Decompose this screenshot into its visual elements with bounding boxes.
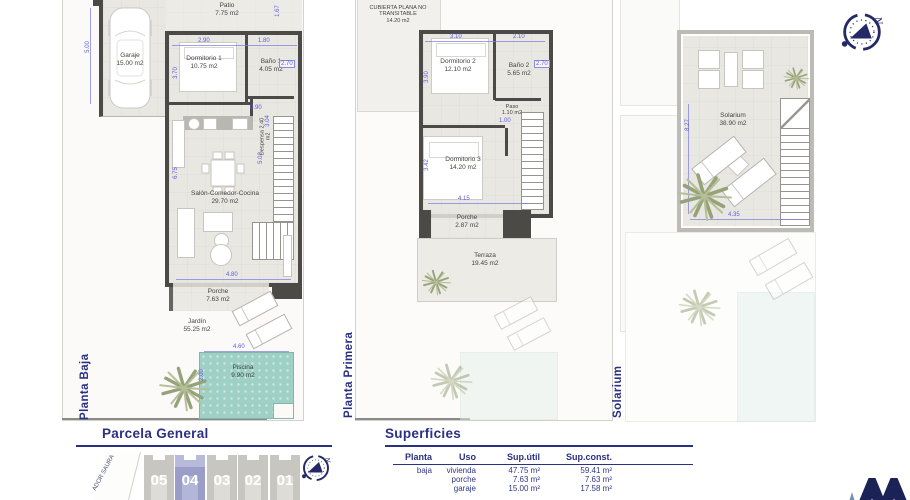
col-values-const: 59.41 m²7.63 m²17.58 m² — [532, 467, 612, 493]
room-label-salon: Salón-Comedor-Cocina29.70 m2 — [180, 190, 270, 205]
plan-title-solarium: Solarium — [612, 356, 624, 418]
kitchen-appliance — [232, 118, 248, 130]
room-label-solarium: Solarium38.90 m2 — [703, 112, 763, 127]
dim-label: 1.00 — [499, 118, 511, 124]
room-label-dormitorio1: Dormitorio 110.75 m2 — [172, 55, 236, 70]
col-header-uso: Uso — [416, 452, 476, 462]
room-label-piscina: Piscina9.90 m2 — [213, 364, 273, 379]
dim-label: 0.90 — [250, 105, 262, 111]
dim-label: 2.10 — [513, 34, 525, 40]
plot-05: 05 — [144, 455, 174, 500]
col-header-util: Sup.útil — [470, 452, 540, 462]
palm-tree-icon-ghost — [676, 284, 722, 330]
superficies-heading: Superficies — [385, 426, 461, 441]
svg-text:N: N — [322, 456, 332, 465]
dim-label: 5.02 — [258, 152, 264, 164]
dim-label: 5.00 — [85, 41, 91, 53]
north-arrow-icon-small: N — [298, 450, 334, 486]
pouf-large — [210, 244, 232, 266]
room-label-dormitorio3: Dormitorio 314.20 m2 — [430, 156, 496, 171]
plot-04-highlighted: 04 — [175, 455, 205, 500]
room-label-porche2: Porche2.87 m2 — [437, 214, 497, 229]
dim-label: 3.42 — [424, 159, 430, 171]
dim-label: 3.04 — [265, 115, 271, 127]
stair-landing — [780, 98, 810, 130]
floor-plan-sheet: Garaje15.00 m2 Patio7.75 m2 Dormitorio 1… — [0, 0, 910, 500]
dim-label: 8.27 — [685, 119, 691, 131]
room-label-porche: Porche7.63 m2 — [188, 288, 248, 303]
dim-label: 2.90 — [198, 38, 210, 44]
stairs-planta-primera — [521, 112, 544, 210]
dim-label: 1.80 — [258, 38, 270, 44]
dim-label: 3.70 — [173, 67, 179, 79]
plan-title-planta-primera: Planta Primera — [343, 322, 355, 418]
dim-label: 4.15 — [458, 196, 470, 202]
pool-ghost — [737, 292, 815, 422]
room-label-dormitorio2: Dormitorio 212.10 m2 — [426, 58, 490, 73]
dining-table-icon — [201, 150, 245, 194]
dim-label: 2.70 — [279, 60, 295, 68]
dim-label: 1.67 — [275, 5, 281, 17]
company-logo — [842, 478, 910, 500]
kitchen-cabinet — [172, 120, 185, 168]
parcela-heading: Parcela General — [102, 426, 209, 441]
tv-unit — [283, 235, 292, 277]
palm-tree-icon-ghost — [428, 358, 474, 404]
deck-chair — [742, 70, 764, 89]
deck-chair — [698, 70, 720, 89]
room-label-cubierta: CUBIERTA PLANA NO TRANSITABLE 14.20 m2 — [357, 5, 439, 24]
stairs-solarium — [780, 128, 810, 226]
room-label-patio: Patio7.75 m2 — [197, 2, 257, 17]
stairs-planta-baja — [273, 116, 294, 222]
dim-label: 2.70 — [534, 60, 550, 68]
dim-label: 2.00 — [199, 369, 205, 381]
plot-02: 02 — [238, 455, 268, 500]
col-values-util: 47.75 m²7.63 m²15.00 m² — [470, 467, 540, 493]
armchair — [203, 212, 233, 232]
col-values-uso: viviendaporchegaraje — [416, 467, 476, 493]
north-arrow-icon: N — [836, 6, 888, 58]
palm-tree-icon — [782, 64, 810, 92]
palm-tree-icon — [674, 166, 734, 226]
palm-tree-icon — [420, 266, 452, 298]
sofa — [177, 208, 195, 258]
room-label-terraza: Terraza19.45 m2 — [450, 252, 520, 267]
dim-label: 4.60 — [233, 344, 245, 350]
kitchen-hob — [203, 118, 217, 130]
pool-ghost — [460, 352, 558, 420]
kitchen-sink — [188, 118, 200, 130]
room-label-jardin: Jardín55.25 m2 — [167, 318, 227, 333]
pool-step — [273, 403, 293, 418]
dim-label: 6.75 — [173, 167, 179, 179]
room-label-paso: Paso1.10 m2 — [494, 104, 530, 117]
dim-label: 4.35 — [728, 212, 740, 218]
room-label-garaje: Garaje15.00 m2 — [99, 52, 161, 67]
plan-title-planta-baja: Planta Baja — [79, 345, 91, 420]
col-header-const: Sup.const. — [532, 452, 612, 462]
dim-label: 4.80 — [226, 272, 238, 278]
deck-table — [724, 52, 738, 87]
dim-label: 3.90 — [424, 71, 430, 83]
deck-chair — [698, 50, 720, 69]
plot-03: 03 — [207, 455, 237, 500]
plot-01: 01 — [270, 455, 300, 500]
dim-label: 3.10 — [450, 34, 462, 40]
neighbor-roof-ghost — [620, 0, 680, 106]
deck-chair — [742, 50, 764, 69]
